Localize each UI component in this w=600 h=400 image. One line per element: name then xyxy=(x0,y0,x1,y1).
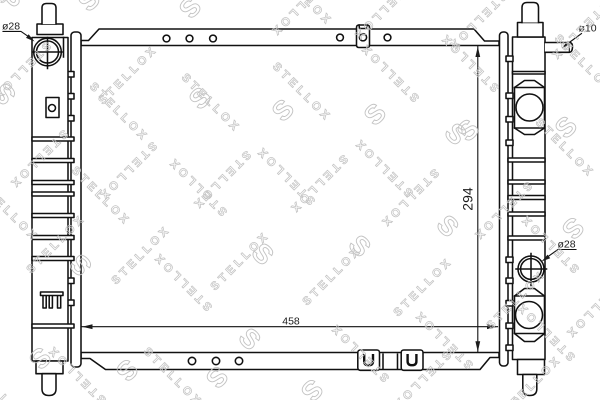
svg-text:294: 294 xyxy=(460,187,476,211)
svg-text:ø28: ø28 xyxy=(2,21,20,33)
svg-text:458: 458 xyxy=(282,316,300,328)
